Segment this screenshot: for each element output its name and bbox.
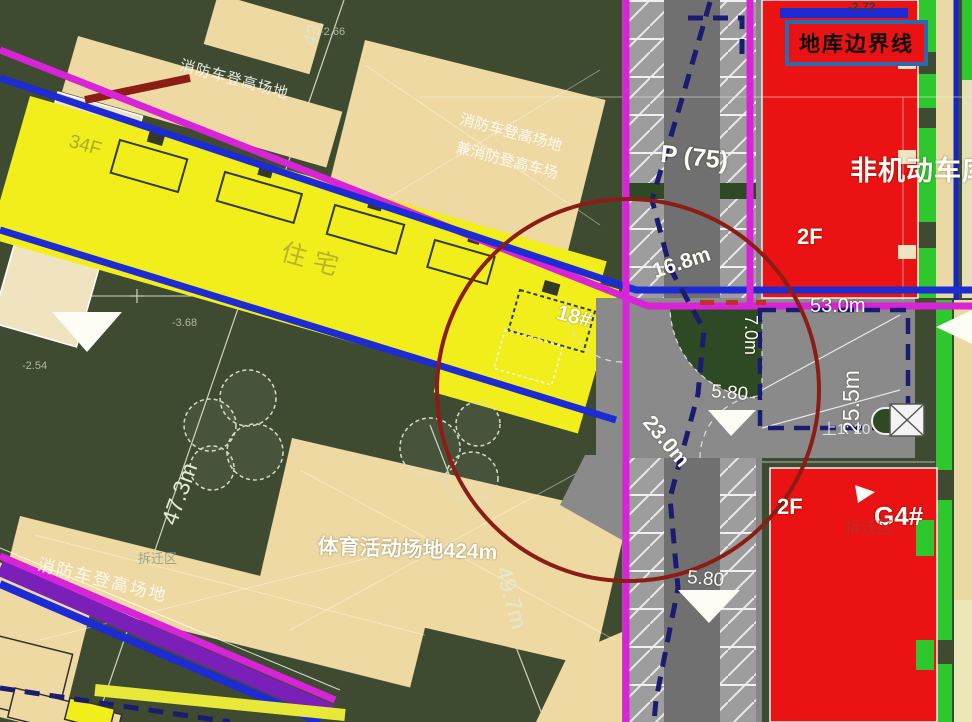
ramp-symbol: [872, 404, 924, 436]
blue-strip: [780, 8, 908, 18]
site-plan-canvas: [0, 0, 972, 722]
garage-boundary-legend: 地库边界线: [785, 20, 928, 66]
red-garage-building-bottom: [770, 468, 937, 722]
site-plan-drawing: 地库边界线 -2.72 非机动车库 2F P (75) 16.8m 7.0m 2…: [0, 0, 972, 722]
